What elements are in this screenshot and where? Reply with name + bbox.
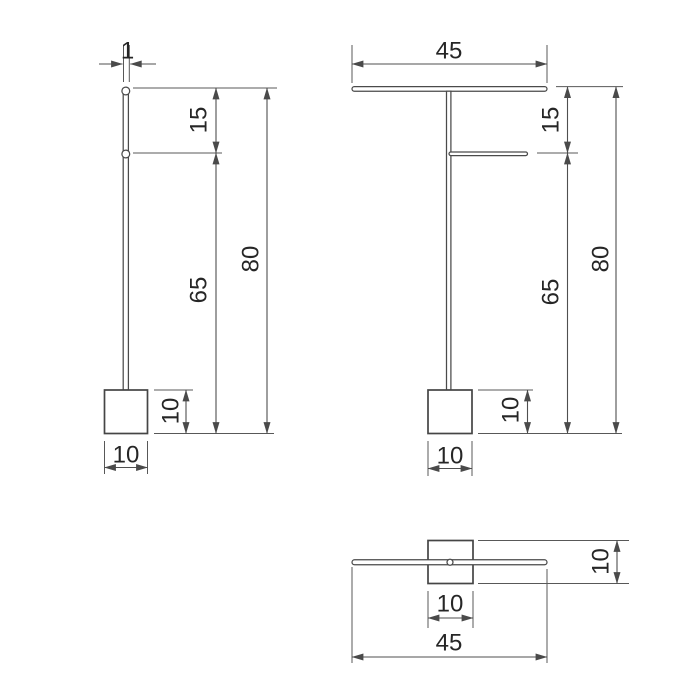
top-view: 10 10 45	[352, 541, 629, 664]
side-dim-label-top-gap: 15	[186, 107, 213, 134]
top-dim-label-bar-length: 45	[436, 630, 463, 657]
side-dim-label-base-height: 10	[158, 398, 185, 425]
technical-drawing: 1 15 65 80 10 10 45	[0, 0, 700, 700]
side-dim-label-pole-diameter: 1	[121, 38, 134, 65]
front-mid-bar	[449, 152, 528, 156]
top-dim-label-base-depth: 10	[588, 548, 615, 575]
side-dim-label-total-height: 80	[238, 246, 265, 273]
front-pole	[447, 91, 451, 390]
drawing-canvas: 1 15 65 80 10 10 45	[0, 0, 700, 700]
side-dim-label-base-width: 10	[113, 442, 140, 469]
side-pole	[123, 91, 128, 390]
front-dim-label-total-height: 80	[588, 246, 615, 273]
side-top-bar-end	[122, 87, 130, 95]
side-view: 1 15 65 80 10 10	[99, 38, 277, 475]
front-top-bar	[352, 87, 547, 92]
front-dim-label-base-height: 10	[498, 397, 525, 424]
front-dim-label-top-gap: 15	[538, 107, 565, 134]
top-pole-end	[447, 559, 453, 565]
top-dim-label-base-width: 10	[437, 591, 464, 618]
front-dim-label-base-width: 10	[437, 443, 464, 470]
front-base-block	[428, 390, 472, 434]
side-base-block	[105, 390, 148, 434]
front-dim-label-pole-height: 65	[538, 279, 565, 306]
front-view: 45 15 65 80 10 10	[352, 38, 623, 477]
side-mid-bar-end	[122, 150, 130, 158]
side-dim-label-pole-height: 65	[186, 277, 213, 304]
front-dim-label-bar-width: 45	[436, 38, 463, 65]
